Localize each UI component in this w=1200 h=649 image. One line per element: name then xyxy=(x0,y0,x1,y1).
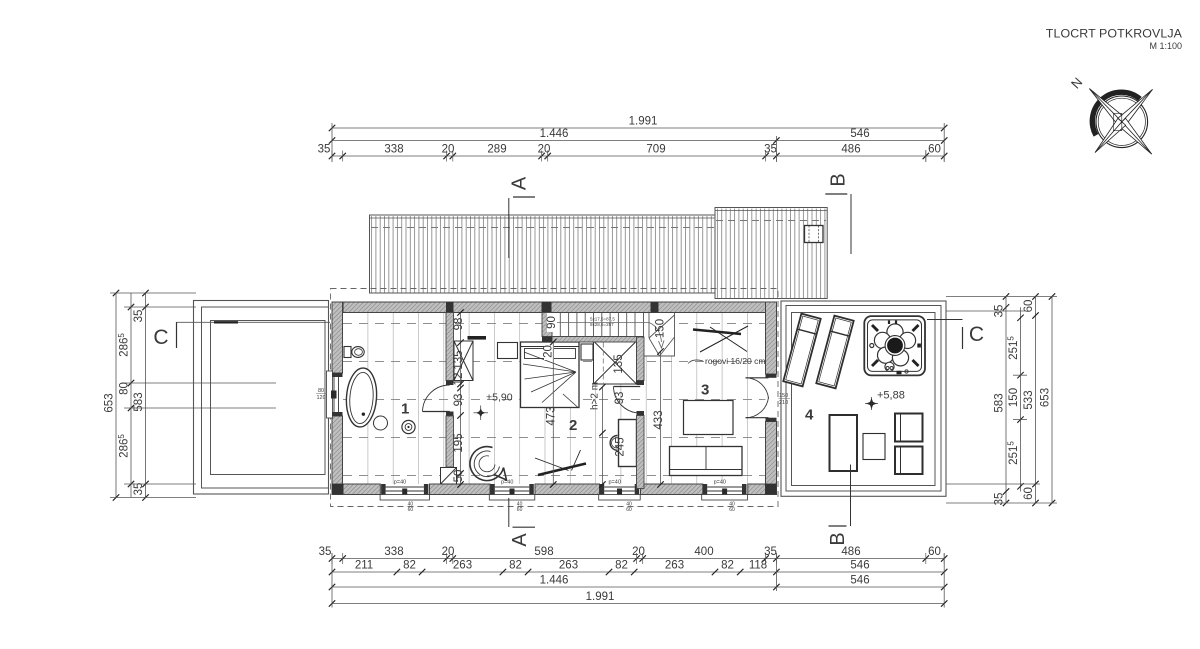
svg-text:20: 20 xyxy=(632,546,645,558)
svg-text:533: 533 xyxy=(1023,390,1035,409)
svg-text:598: 598 xyxy=(534,546,553,558)
svg-text:546: 546 xyxy=(850,560,869,572)
svg-text:60: 60 xyxy=(1023,487,1035,500)
svg-text:150: 150 xyxy=(655,319,667,338)
svg-text:82: 82 xyxy=(721,560,734,572)
svg-text:486: 486 xyxy=(841,546,860,558)
svg-text:82: 82 xyxy=(403,560,416,572)
svg-text:+5,90: +5,90 xyxy=(486,392,513,404)
svg-text:82: 82 xyxy=(615,560,628,572)
svg-text:60: 60 xyxy=(928,546,941,558)
svg-text:A: A xyxy=(508,176,530,190)
svg-text:135: 135 xyxy=(613,354,625,373)
svg-text:546: 546 xyxy=(850,128,869,140)
svg-text:A: A xyxy=(509,533,531,547)
svg-text:1.991: 1.991 xyxy=(629,116,658,128)
svg-text:486: 486 xyxy=(841,144,860,156)
svg-text:135: 135 xyxy=(453,350,465,369)
svg-text:20: 20 xyxy=(442,546,455,558)
svg-text:35: 35 xyxy=(764,144,777,156)
svg-text:p=40: p=40 xyxy=(394,480,406,486)
svg-text:195: 195 xyxy=(453,433,465,452)
svg-text:20: 20 xyxy=(442,144,455,156)
svg-text:20: 20 xyxy=(543,345,555,358)
svg-text:400: 400 xyxy=(694,546,713,558)
svg-text:1.991: 1.991 xyxy=(586,591,615,603)
svg-text:TLOCRT POTKROVLJA: TLOCRT POTKROVLJA xyxy=(1046,27,1183,41)
svg-text:20: 20 xyxy=(538,144,551,156)
svg-text:1.446: 1.446 xyxy=(540,128,569,140)
svg-text:C: C xyxy=(969,323,984,346)
svg-text:3: 3 xyxy=(701,382,709,399)
svg-text:150: 150 xyxy=(779,393,788,399)
svg-text:35: 35 xyxy=(133,310,145,323)
svg-text:p=40: p=40 xyxy=(501,480,513,486)
svg-text:150: 150 xyxy=(1008,388,1020,407)
svg-text:rogovi 16/20 cm: rogovi 16/20 cm xyxy=(705,356,765,366)
svg-text:60: 60 xyxy=(928,144,941,156)
svg-text:p=40: p=40 xyxy=(609,480,621,486)
svg-text:263: 263 xyxy=(453,560,472,572)
svg-text:60: 60 xyxy=(517,507,523,513)
svg-text:35: 35 xyxy=(133,483,145,496)
svg-text:583: 583 xyxy=(133,392,145,411)
svg-text:473: 473 xyxy=(546,406,558,425)
svg-text:B: B xyxy=(827,173,849,186)
svg-text:118: 118 xyxy=(749,560,767,572)
svg-text:583: 583 xyxy=(994,393,1006,412)
svg-text:5x17,5=87,5: 5x17,5=87,5 xyxy=(590,317,615,322)
svg-text:35: 35 xyxy=(764,546,777,558)
svg-text:93: 93 xyxy=(614,392,626,405)
svg-text:653: 653 xyxy=(104,393,116,412)
svg-text:709: 709 xyxy=(646,144,665,156)
svg-text:120: 120 xyxy=(317,395,326,401)
svg-text:211: 211 xyxy=(355,560,373,572)
svg-text:50: 50 xyxy=(453,470,465,483)
svg-text:60: 60 xyxy=(626,507,632,513)
svg-text:2: 2 xyxy=(569,417,577,434)
svg-text:80: 80 xyxy=(318,388,324,394)
svg-text:35: 35 xyxy=(994,493,1006,506)
svg-text:60: 60 xyxy=(408,507,414,513)
svg-text:60: 60 xyxy=(1023,300,1035,313)
svg-text:338: 338 xyxy=(384,546,403,558)
svg-text:B: B xyxy=(827,532,849,545)
svg-text:M 1:100: M 1:100 xyxy=(1149,41,1182,51)
svg-text:p=40: p=40 xyxy=(714,480,726,486)
svg-text:82: 82 xyxy=(509,560,522,572)
svg-text:263: 263 xyxy=(665,560,684,572)
svg-text:93: 93 xyxy=(453,394,465,407)
svg-text:653: 653 xyxy=(1040,388,1052,407)
svg-text:210: 210 xyxy=(779,400,788,406)
svg-text:245: 245 xyxy=(615,437,627,456)
svg-text:263: 263 xyxy=(559,560,578,572)
svg-text:546: 546 xyxy=(850,575,869,587)
svg-text:338: 338 xyxy=(384,144,403,156)
svg-text:1: 1 xyxy=(401,401,409,418)
svg-text:98: 98 xyxy=(453,318,465,331)
svg-text:90: 90 xyxy=(546,316,558,329)
svg-text:9x28,6=257: 9x28,6=257 xyxy=(590,322,614,327)
svg-text:35: 35 xyxy=(319,546,332,558)
svg-text:35: 35 xyxy=(318,144,331,156)
svg-text:C: C xyxy=(153,326,168,349)
svg-text:4: 4 xyxy=(805,407,814,424)
svg-text:12: 12 xyxy=(453,373,465,386)
svg-text:60: 60 xyxy=(729,507,735,513)
svg-text:433: 433 xyxy=(653,410,665,429)
svg-text:h>2 m: h>2 m xyxy=(590,382,601,410)
svg-text:80: 80 xyxy=(119,382,131,395)
svg-text:289: 289 xyxy=(487,144,506,156)
svg-text:1.446: 1.446 xyxy=(540,575,569,587)
svg-text:+5,88: +5,88 xyxy=(877,390,905,402)
